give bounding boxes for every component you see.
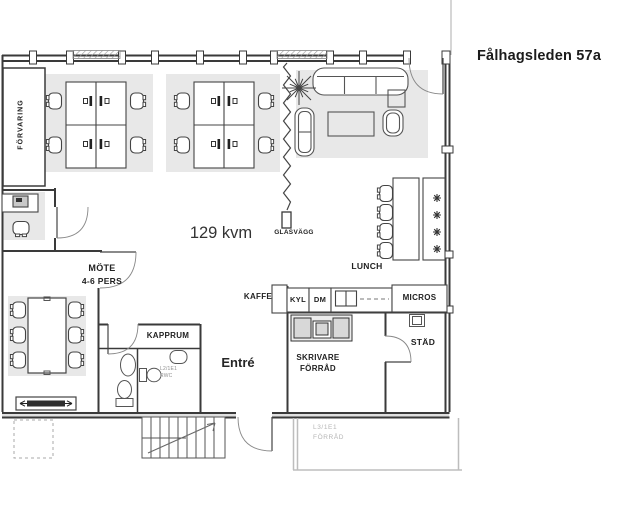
door-office-nook: [57, 207, 88, 238]
entrance-label: Entré: [210, 355, 266, 370]
meeting-room-capacity: 4-6 PERS: [60, 276, 144, 286]
lunch-label: LUNCH: [344, 261, 390, 271]
coffee-label: KAFFE: [241, 292, 275, 301]
dishwasher-label: DM: [309, 295, 331, 304]
floor-plan-page: Fålhagsleden 57a 129 kvm GLASVÄGG FÖRVAR…: [0, 0, 640, 512]
rwc-toilet: [140, 368, 162, 382]
stairs: [142, 417, 225, 458]
cloakroom-label: KAPPRUM: [136, 331, 200, 340]
wc-toilet: [116, 381, 133, 407]
fridge-label: KYL: [287, 295, 309, 304]
window-bench: [423, 178, 445, 260]
lunch-table: [393, 178, 419, 260]
wc-sink: [121, 354, 136, 376]
lunch-area: [377, 178, 445, 260]
dashed-shaft: [14, 420, 53, 458]
glass-wall-label: GLASVÄGG: [262, 229, 326, 236]
conference-table: [28, 298, 66, 373]
meeting-room: [10, 297, 83, 410]
sofa: [313, 68, 408, 95]
printer-room-label: SKRIVARE: [289, 353, 347, 362]
storage-closet-label: FÖRVARING: [18, 75, 25, 175]
lower-storage-code: L3/1E1: [313, 423, 375, 433]
rwc-tag: L2/1E1 RWC: [160, 366, 194, 379]
lower-storage-tag: L3/1E1 FÖRRÅD: [313, 423, 375, 443]
stad-sink: [410, 315, 425, 327]
area-label: 129 kvm: [181, 224, 261, 243]
lower-storage-label: FÖRRÅD: [313, 433, 375, 443]
media-bench: [16, 397, 76, 410]
cleaning-room-label: STÄD: [400, 337, 446, 347]
door-entrance: [238, 417, 272, 451]
microwave-label: MICROS: [392, 293, 447, 302]
rwc-sink: [170, 351, 187, 364]
rwc-label: RWC: [160, 373, 194, 380]
plant: [282, 71, 316, 105]
meeting-room-label: MÖTE: [60, 263, 144, 273]
plan-title: Fålhagsleden 57a: [477, 48, 601, 64]
door-kapprum: [108, 324, 138, 354]
printer-room-label-2: FÖRRÅD: [289, 364, 347, 373]
printer-room: [291, 315, 352, 341]
